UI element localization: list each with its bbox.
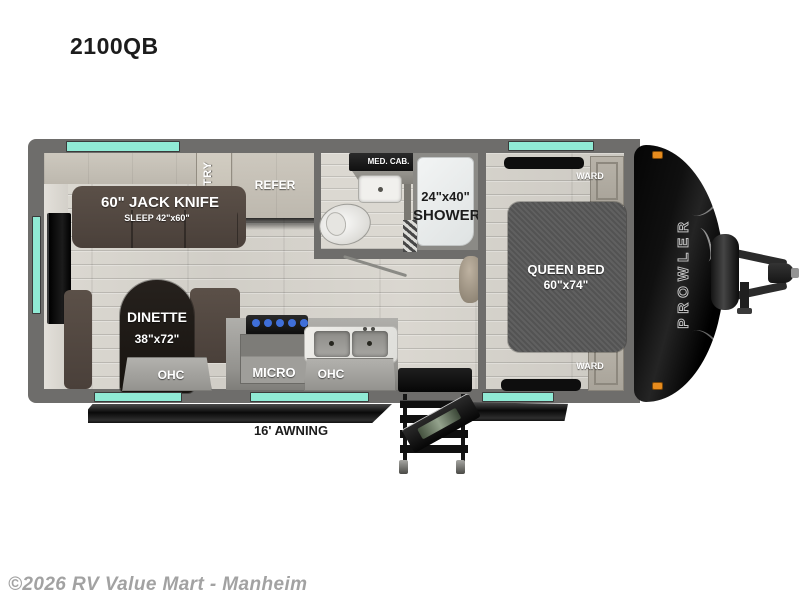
bedroom-divider-wall	[478, 153, 486, 389]
sofa-label-line1: 60" JACK KNIFE	[88, 195, 232, 211]
entry-door-window	[417, 408, 461, 440]
step-foot-right	[456, 460, 465, 474]
sink-drains	[329, 341, 334, 346]
dinette-label-line1: DINETTE	[120, 310, 194, 325]
tongue-jack	[740, 282, 749, 310]
sofa-label-line2: SLEEP 42"x60"	[88, 214, 226, 223]
entry-door-mat	[398, 368, 472, 392]
queen-bed-label-line2: 60"x74"	[508, 279, 624, 292]
marker-light-top	[652, 151, 663, 159]
brand-logo-wrap: PROWLER	[652, 162, 714, 384]
brand-logo-text: PROWLER	[675, 217, 692, 329]
ohc-kitchen-label: OHC	[296, 368, 366, 381]
faucet-icon	[363, 327, 367, 331]
floorplan-image: 2100QB PANTRY REFER 60" JACK KNIFE SLEEP…	[0, 0, 800, 600]
window-top-rear	[66, 141, 180, 152]
page-title: 2100QB	[70, 34, 159, 58]
window-top-bedroom	[508, 141, 594, 151]
ohc-dinette-label: OHC	[134, 369, 208, 382]
shower-door-track	[403, 220, 417, 252]
bathroom-wall-left	[314, 153, 321, 259]
hitch-ball-mount	[791, 268, 799, 278]
awning-roller	[88, 404, 392, 423]
bathroom-wall-bottom	[314, 249, 484, 259]
shower-label-line1: 24"x40"	[413, 190, 478, 204]
bathroom-sink-drain	[378, 187, 383, 192]
bedroom-window-bottom	[501, 379, 581, 391]
watermark: ©2026 RV Value Mart - Manheim	[8, 574, 307, 596]
bedroom-window-top	[504, 157, 584, 169]
window-bottom-kitchen	[250, 392, 369, 402]
queen-bed	[508, 202, 626, 352]
shower-label-line2: SHOWER	[413, 208, 478, 224]
dinette-label-line2: 38"x72"	[120, 333, 194, 346]
stove-burner-knobs	[252, 319, 260, 327]
step-foot-left	[399, 460, 408, 474]
tongue-jack-foot	[737, 308, 752, 314]
window-bottom-dinette	[94, 392, 182, 402]
ward-top-label: WARD	[566, 172, 614, 181]
refer-label: REFER	[232, 179, 318, 192]
window-rear-wall	[32, 216, 41, 314]
propane-tank-cover	[711, 234, 739, 310]
awning-label: 16' AWNING	[231, 424, 351, 438]
ward-bottom-label: WARD	[566, 362, 614, 371]
sink-bowl-right	[352, 331, 388, 357]
window-bottom-bedroom	[482, 392, 554, 402]
dinette-bench-left	[64, 290, 92, 389]
queen-bed-label-line1: QUEEN BED	[508, 263, 624, 277]
